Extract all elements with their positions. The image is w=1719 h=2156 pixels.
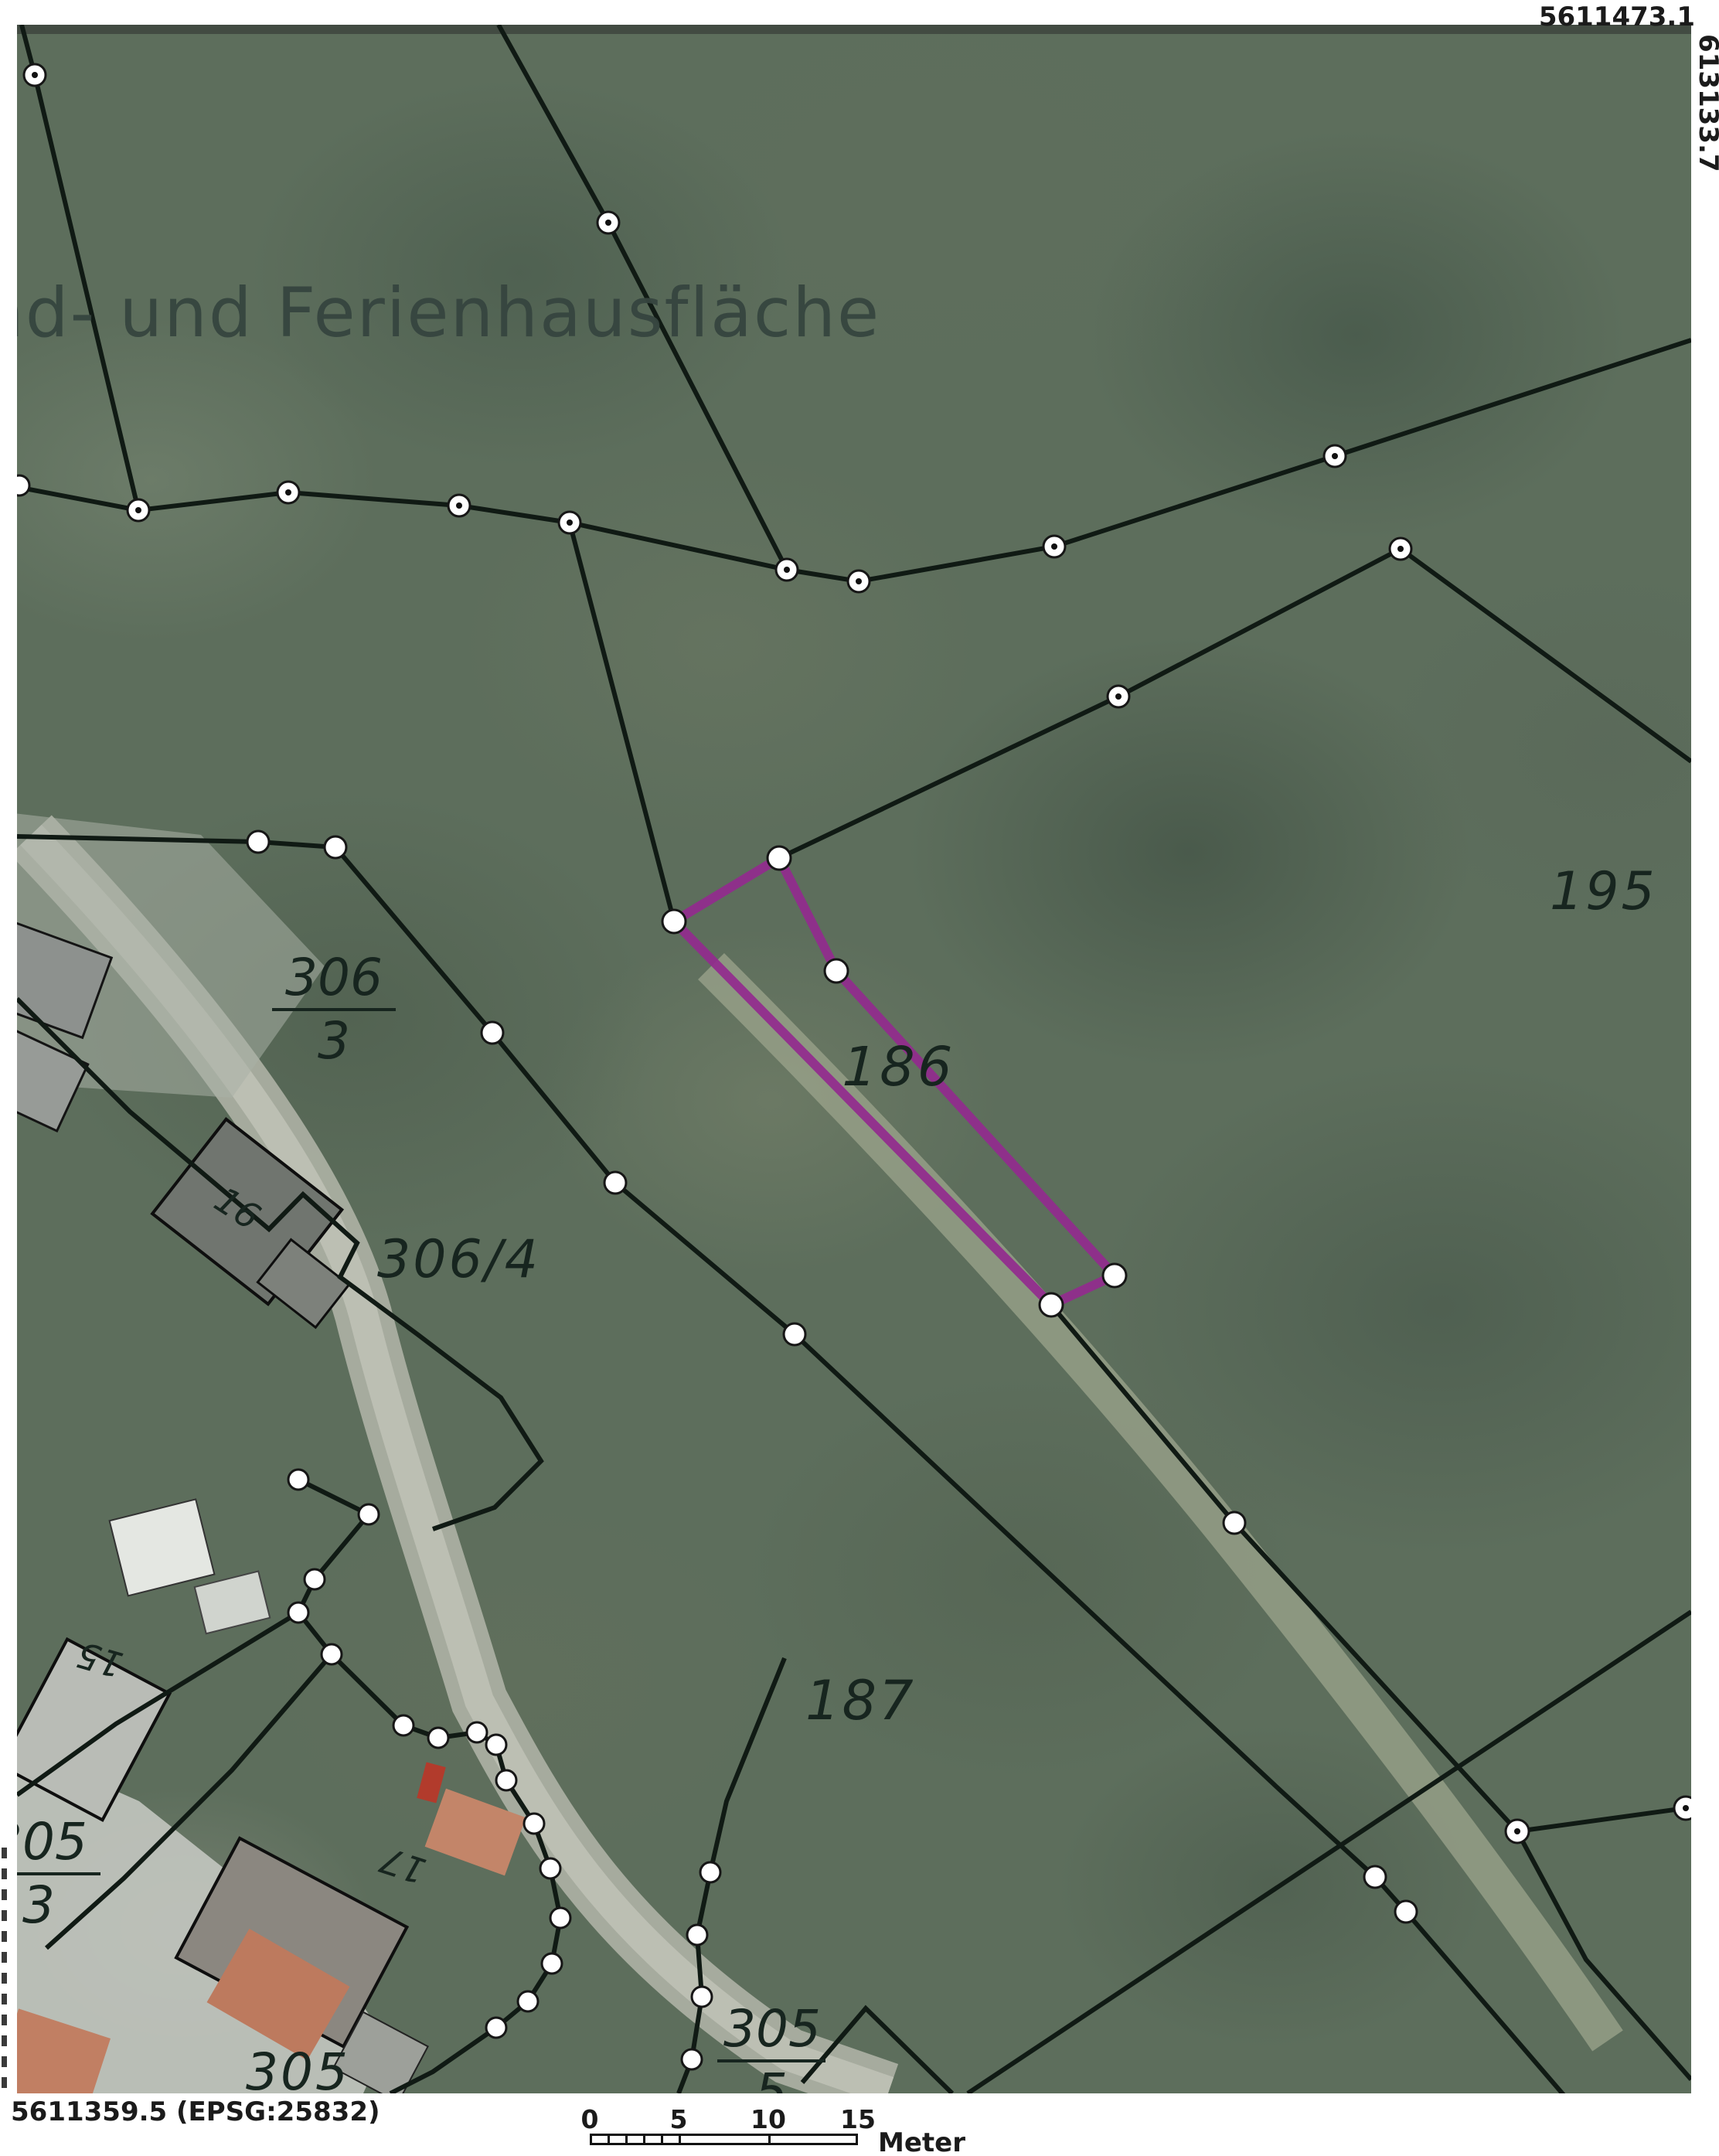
house-number-15: 15 [73, 1637, 127, 1683]
cadastral-map-page: nd- und Ferienhausfläche 195 186 187 306… [0, 0, 1719, 2156]
coordinate-label-origin: 5611359.5 (EPSG:25832) [11, 2096, 380, 2127]
parcel-fraction-305-5: 305 5 [717, 2004, 825, 2093]
scalebar-tick-label: 5 [655, 2104, 702, 2134]
boundary-chain-top [17, 340, 1691, 581]
scalebar-tick-label: 15 [835, 2104, 881, 2134]
parcel-label-187: 187 [805, 1674, 916, 1728]
building-shed [195, 1572, 270, 1634]
boundary-steep-left [22, 25, 138, 510]
building-shed [110, 1499, 215, 1596]
scan-artifact-band [17, 25, 1691, 34]
parcel-label-305: 305 [246, 2047, 350, 2093]
fraction-denominator: 3 [17, 1875, 100, 1931]
scalebar-tick [679, 2136, 681, 2143]
parcel-fraction-306-3: 306 3 [272, 952, 396, 1067]
scalebar-tick [768, 2136, 771, 2143]
fraction-denominator: 5 [717, 2062, 825, 2093]
scalebar-tick [643, 2136, 645, 2143]
path-track [711, 966, 1608, 2041]
parcel-label-186: 186 [842, 1040, 956, 1094]
clipped-edge-text [2, 1848, 7, 2091]
boundary-parcel-195 [779, 549, 1691, 858]
scalebar-tick-label: 10 [745, 2104, 791, 2134]
coordinate-label-north: 5611473.1 [1539, 2, 1695, 32]
scalebar-tick [608, 2136, 610, 2143]
scalebar-bar [590, 2134, 858, 2145]
coordinate-label-east: 613133.7 [1693, 34, 1719, 172]
boundary-diagonal-long [335, 847, 1564, 2093]
fraction-denominator: 3 [272, 1011, 396, 1067]
fraction-numerator: 305 [17, 1817, 100, 1875]
parcel-label-306-4: 306/4 [377, 1234, 540, 1286]
scalebar-tick-label: 0 [567, 2104, 613, 2134]
fraction-numerator: 306 [272, 952, 396, 1011]
fraction-numerator: 305 [717, 2004, 825, 2062]
scalebar-unit: Meter [878, 2127, 965, 2156]
boundary-to-parcel [570, 523, 674, 921]
parcel-fraction-305-3: 305 3 [17, 1817, 100, 1931]
boundary-right-spur [1517, 1807, 1691, 1831]
scalebar-tick [625, 2136, 628, 2143]
scalebar-tick [661, 2136, 663, 2143]
zoning-area-label: nd- und Ferienhausfläche [17, 279, 880, 347]
parcel-label-195: 195 [1550, 866, 1657, 918]
red-car [417, 1762, 446, 1803]
map-viewport[interactable]: nd- und Ferienhausfläche 195 186 187 306… [17, 25, 1691, 2093]
